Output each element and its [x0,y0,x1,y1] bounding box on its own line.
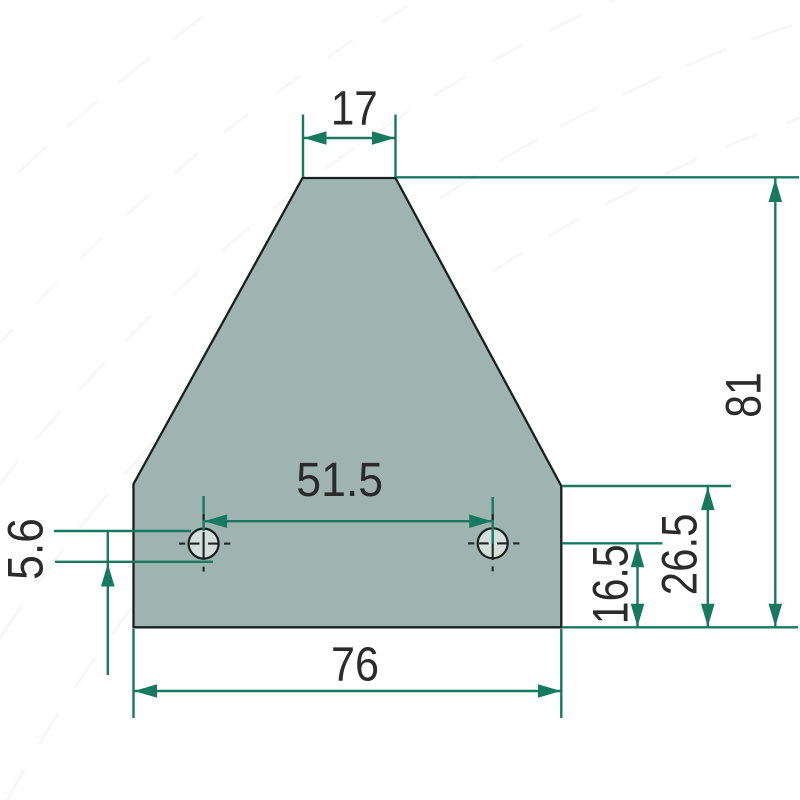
svg-text:16.5: 16.5 [582,544,638,624]
svg-text:17: 17 [331,81,378,135]
svg-text:76: 76 [331,636,379,691]
svg-text:26.5: 26.5 [651,514,707,596]
svg-text:81: 81 [716,372,772,418]
svg-text:5.6: 5.6 [0,518,54,580]
svg-text:51.5: 51.5 [296,452,383,506]
